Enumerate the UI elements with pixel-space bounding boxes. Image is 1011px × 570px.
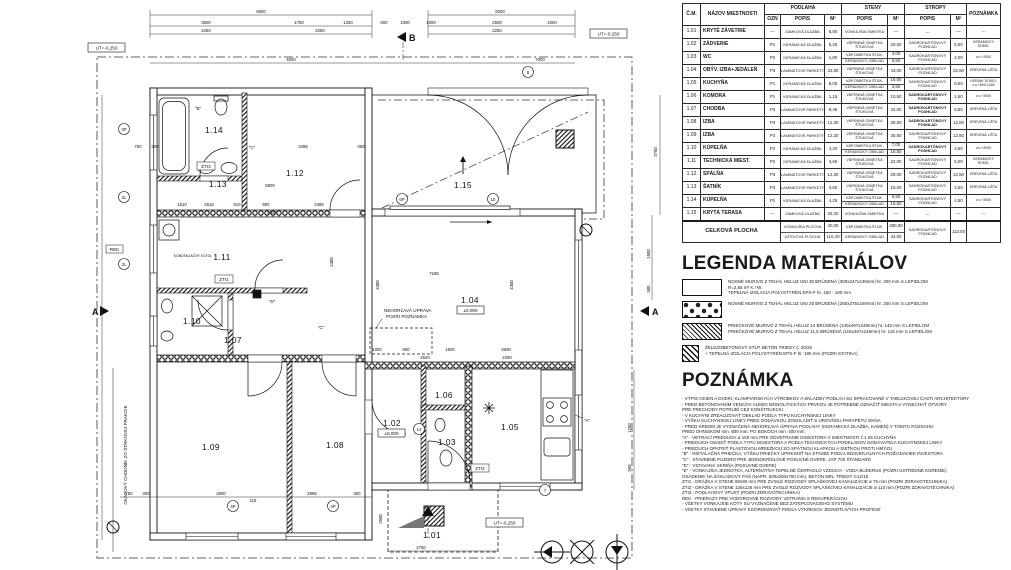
- room-label: 1.04: [461, 295, 479, 305]
- col-m2: M²: [888, 15, 905, 26]
- plan-graphic: [543, 546, 552, 558]
- dim-label: 2250: [502, 355, 512, 360]
- schedule-cell: —: [951, 208, 967, 222]
- schedule-row: 1.11TECHNICKÁ MIEST.P2KERAMICKÁ DLAŽBA4,…: [683, 156, 1001, 169]
- schedule-cell: 1.09: [683, 130, 701, 143]
- schedule-cell: 16,003,50: [888, 78, 905, 91]
- plan-graphic: [397, 32, 406, 42]
- room-label: 1.09: [202, 442, 220, 452]
- toilet: [215, 99, 227, 115]
- dim-label: 115: [250, 498, 257, 503]
- schedule-cell: SADROKARTÓNOVÝ PODHĽAD: [905, 65, 951, 78]
- schedule-cell: —: [765, 208, 781, 222]
- col-name: NÁZOV MIESTNOSTI: [701, 4, 765, 26]
- dim-label: 5800: [265, 183, 275, 188]
- zti-label: ZTI2: [475, 466, 485, 471]
- schedule-row: 1.08IZBAP3LAMINÁTOVÉ PARKETY12,30VÁPENNÁ…: [683, 117, 1001, 130]
- room-label: 1.08: [326, 440, 344, 450]
- schedule-cell: 35,50: [888, 130, 905, 143]
- schedule-cell: P3: [765, 65, 781, 78]
- dim-label: 1500: [646, 249, 651, 259]
- notes-section: POZNÁMKA - VÝPIS OKIEN A DVERÍ, KLAMPIAR…: [682, 370, 1009, 512]
- toilet: [440, 450, 452, 466]
- dim-label: 2020: [267, 210, 277, 215]
- schedule-cell: SADROKARTÓNOVÝ PODHĽAD: [905, 104, 951, 117]
- dim-label: 900: [262, 202, 270, 207]
- schedule-cell: 113,50: [951, 221, 967, 243]
- room-label: 1.11: [213, 252, 230, 262]
- schedule-row: 1.05KUCHYŇAP1KERAMICKÁ DLAŽBA8,05VÁP.OMI…: [683, 78, 1001, 91]
- plan-graphic: [547, 416, 554, 423]
- schedule-cell: KOMORA: [701, 91, 765, 104]
- schedule-cell: SADROKARTÓNOVÝ PODHĽAD: [905, 221, 951, 243]
- schedule-cell: 1.03: [683, 52, 701, 65]
- plan-graphic: [547, 402, 554, 409]
- schedule-cell: 12,50: [951, 130, 967, 143]
- schedule-cell: 43,00: [888, 65, 905, 78]
- plan-graphic: [365, 88, 372, 540]
- schedule-cell: v.o.+2000: [967, 143, 1001, 156]
- col-ozn: OZN: [765, 15, 781, 26]
- marker-label: 10: [491, 197, 496, 202]
- schedule-cell: 36,50: [888, 117, 905, 130]
- schedule-cell: KERAM. SOKEL v.o.+800-1400: [967, 78, 1001, 91]
- schedule-cell: 1.04: [683, 65, 701, 78]
- partition-walls: [157, 93, 465, 533]
- legend-item: NOSNÉ MURIVO Z TEHÁL HELUZ UNI 25 BRÚSEN…: [682, 301, 1009, 318]
- vent-symbol: [483, 402, 495, 414]
- note-line: - VÝPIS OKIEN A DVERÍ, KLAMPIARSKYCH VÝR…: [682, 396, 1009, 402]
- schedule-cell: 12,50: [951, 169, 967, 182]
- schedule-cell: SADROKARTÓNOVÝ PODHĽAD: [905, 182, 951, 195]
- dim-label: 2985: [307, 491, 317, 496]
- quote-label: "B": [195, 106, 202, 111]
- section-b-label: B: [409, 33, 416, 43]
- schedule-cell: 4,65: [825, 156, 842, 169]
- legend-item: PRIEČKOVÉ MURIVO Z TEHÁL HELUZ 14 BRÚSEN…: [682, 323, 1009, 340]
- toilet: [162, 299, 173, 313]
- quote-label: "D": [269, 299, 276, 304]
- schedule-cell: —: [888, 208, 905, 222]
- dim-label: 2500: [492, 20, 502, 25]
- schedule-row: 1.03WCP2KERAMICKÁ DLAŽBA1,80VÁP.OMIETKA …: [683, 52, 1001, 65]
- marker-label: 14: [417, 427, 422, 432]
- dim-label: 4300: [509, 280, 514, 290]
- dim-label: 1000: [372, 347, 382, 352]
- schedule-cell: 10,50: [888, 91, 905, 104]
- section-a-label: A: [92, 307, 99, 317]
- schedule-cell: 280,5044,00: [888, 221, 905, 243]
- dim-label: 7000: [535, 57, 545, 62]
- marker-label: 2L: [122, 195, 127, 200]
- schedule-row: 1.02ZÁDVERIEP1KERAMICKÁ DLAŽBA5,25VÁPENN…: [683, 39, 1001, 52]
- schedule-cell: ZÁMKOVÁ DLAŽBA: [781, 26, 825, 39]
- schedule-cell: VÁP.OMIETKA ŠTUK.KERAMICKÝ OBKLAD: [842, 52, 888, 65]
- schedule-cell: VÁPENNÁ OMIETKA ŠTUKOVÁ: [842, 169, 888, 182]
- schedule-cell: P3: [765, 182, 781, 195]
- schedule-cell: DREVENÁ LIŠTA: [967, 182, 1001, 195]
- schedule-cell: SADROKARTÓNOVÝ PODHĽAD: [905, 52, 951, 65]
- schedule-cell: P2: [765, 143, 781, 156]
- plan-graphic: [487, 220, 492, 224]
- schedule-cell: LAMINÁTOVÉ PARKETY: [781, 169, 825, 182]
- sliding-door: [385, 206, 520, 224]
- schedule-cell: KÚPEĽŇA: [701, 195, 765, 208]
- room-schedule-table: Č.M. NÁZOV MIESTNOSTI PODLAHA STENY STRO…: [682, 3, 1001, 243]
- elevation-label: UT=-0,250: [494, 521, 516, 526]
- schedule-cell: SPÁLŇA: [701, 169, 765, 182]
- legend-line: + TEPELNÁ IZOLÁCIA POLYSTYRÉN EPS-F hr. …: [705, 351, 858, 357]
- schedule-cell: —: [765, 26, 781, 39]
- schedule-cell: SADROKARTÓNOVÝ PODHĽAD: [905, 78, 951, 91]
- schedule-cell: P3: [765, 104, 781, 117]
- quote-label: "A": [584, 418, 591, 423]
- quote-label: "C": [249, 145, 256, 150]
- schedule-cell: 1.07: [683, 104, 701, 117]
- col-popis: POPIS: [842, 15, 888, 26]
- schedule-cell: 1,50: [951, 91, 967, 104]
- schedule-cell: VÁPENNÁ OMIETKA ŠTUKOVÁ: [842, 182, 888, 195]
- schedule-cell: —: [905, 208, 951, 222]
- dim-label: 950: [627, 464, 632, 472]
- kitchen-counter: [541, 370, 573, 480]
- sink: [161, 331, 173, 341]
- schedule-cell: v.o.+2000: [967, 52, 1001, 65]
- schedule-row: 1.13ŠATNÍKP3LAMINÁTOVÉ PARKETY3,50VÁPENN…: [683, 182, 1001, 195]
- col-m2: M²: [951, 15, 967, 26]
- schedule-cell: P2: [765, 52, 781, 65]
- schedule-cell: 1.01: [683, 26, 701, 39]
- zti-label: ZTI3: [201, 164, 211, 169]
- benchmark-left-icon: [534, 541, 570, 563]
- dim-label: 2250: [492, 28, 502, 33]
- schedule-cell: P3: [765, 130, 781, 143]
- schedule-cell: SADROKARTÓNOVÝ PODHĽAD: [905, 91, 951, 104]
- schedule-cell: 5,00: [951, 156, 967, 169]
- schedule-cell: 4,50: [951, 143, 967, 156]
- schedule-cell: 1,80: [825, 52, 842, 65]
- section-a-label: A: [652, 307, 659, 317]
- room-label: 1.05: [501, 422, 519, 432]
- right-panel: Č.M. NÁZOV MIESTNOSTI PODLAHA STENY STRO…: [681, 0, 1009, 570]
- schedule-cell: [967, 221, 1001, 243]
- schedule-cell: 3,50: [825, 182, 842, 195]
- plan-graphic: [611, 546, 623, 555]
- schedule-cell: 4,25: [825, 195, 842, 208]
- dim-label: 300: [151, 144, 159, 149]
- plan-graphic: [421, 405, 465, 410]
- schedule-cell: 1.14: [683, 195, 701, 208]
- schedule-cell: KERAMICKÁ DLAŽBA: [781, 91, 825, 104]
- schedule-cell: LAMINÁTOVÉ PARKETY: [781, 65, 825, 78]
- schedule-cell: 32,00: [888, 104, 905, 117]
- plan-graphic: [428, 88, 588, 95]
- legend-line: NOSNÉ MURIVO Z TEHÁL HELUZ UNI 30 BRÚSEN…: [728, 279, 928, 285]
- schedule-cell: 32,50: [825, 65, 842, 78]
- plan-graphic: [214, 96, 228, 101]
- col-stropy: STROPY: [905, 4, 967, 15]
- elevation-label: ±0,000: [384, 431, 398, 436]
- doors: [198, 148, 470, 490]
- marker-label: 4P: [330, 504, 335, 509]
- schedule-cell: KERAMICKÝ SOKEL: [967, 39, 1001, 52]
- room-label: 1.06: [435, 390, 453, 400]
- schedule-cell: P3: [765, 169, 781, 182]
- schedule-cell: 1.02: [683, 39, 701, 52]
- schedule-cell: 7,0016,50: [888, 143, 905, 156]
- dim-label: 2250: [201, 28, 211, 33]
- schedule-cell: VONKAJŠIA OMIETKA: [842, 208, 888, 222]
- plan-graphic: [163, 102, 186, 171]
- schedule-cell: SADROKARTÓNOVÝ PODHĽAD: [905, 156, 951, 169]
- schedule-cell: CELKOVÁ PLOCHA: [683, 221, 781, 243]
- schedule-cell: KERAMICKÝ SOKEL: [967, 156, 1001, 169]
- schedule-cell: P1: [765, 78, 781, 91]
- schedule-cell: 4,006,50: [888, 52, 905, 65]
- marker-label: 6P: [399, 197, 404, 202]
- schedule-cell: DREVENÁ LIŠTA: [967, 169, 1001, 182]
- sink: [435, 419, 445, 432]
- dim-label: 1000: [426, 20, 436, 25]
- schedule-cell: VÁP.OMIETKA ŠTUK.KERAMICKÝ OBKLAD: [842, 143, 888, 156]
- plan-graphic: [150, 88, 372, 95]
- plan-graphic: [561, 416, 568, 423]
- plan-graphic: [150, 533, 372, 540]
- marker-label: 3P: [121, 127, 126, 132]
- col-popis: POPIS: [905, 15, 951, 26]
- col-steny: STENY: [842, 4, 905, 15]
- room-label: 1.10: [183, 316, 201, 326]
- boiler-label: KONDENZAČNÝ KOTOL: [174, 253, 212, 258]
- dim-label: 2400: [329, 257, 334, 267]
- dim-label: 7185: [429, 271, 439, 276]
- dim-label: 4300: [375, 280, 380, 290]
- schedule-cell: P2: [765, 195, 781, 208]
- schedule-cell: DREVENÁ LIŠTA: [967, 65, 1001, 78]
- schedule-cell: KRYTÉ ZÁVETRIE: [701, 26, 765, 39]
- schedule-cell: P1: [765, 91, 781, 104]
- schedule-cell: 40,00110,40: [825, 221, 842, 243]
- schedule-row: 1.07CHODBAP3LAMINÁTOVÉ PARKETY8,45VÁPENN…: [683, 104, 1001, 117]
- schedule-cell: 22,00: [888, 156, 905, 169]
- dim-label: 300: [353, 491, 361, 496]
- schedule-cell: 8,50: [951, 78, 967, 91]
- schedule-cell: —: [888, 26, 905, 39]
- quote-label: "C": [318, 325, 325, 330]
- plan-graphic: [198, 300, 228, 330]
- dim-label: 1750: [294, 20, 304, 25]
- fire-note-label: NEHORĽAVÁ ÚPRAVA: [384, 307, 432, 313]
- legend-line: NOSNÉ MURIVO Z TEHÁL HELUZ UNI 25 BRÚSEN…: [728, 301, 928, 307]
- dim-label: 2250: [315, 28, 325, 33]
- dim-label: 2620: [420, 355, 430, 360]
- marker-label: 2L: [122, 262, 127, 267]
- plan-graphic: [428, 95, 508, 175]
- schedule-cell: VÁPENNÁ OMIETKA ŠTUKOVÁ: [842, 65, 888, 78]
- plan-graphic: [255, 260, 283, 288]
- legend-item: ŽELEZOBETÓNOVÝ STĹP, BETÓN TRIEDY C 20/2…: [682, 345, 1009, 362]
- schedule-cell: ZÁMKOVÁ DLAŽBA: [781, 208, 825, 222]
- schedule-cell: KERAMICKÁ DLAŽBA: [781, 156, 825, 169]
- step-marker: [398, 516, 424, 528]
- schedule-cell: IZBA: [701, 117, 765, 130]
- plan-graphic: [330, 210, 360, 217]
- zti-label: ZTI1: [219, 277, 229, 282]
- elevation-label: UT=-0,250: [598, 32, 620, 37]
- schedule-cell: 1.08: [683, 117, 701, 130]
- elevation-label: ±0,000: [463, 308, 477, 313]
- plan-graphic: [581, 225, 591, 235]
- dim-label: 1000: [547, 20, 557, 25]
- dim-label: 1250: [343, 20, 353, 25]
- legend-title: LEGENDA MATERIÁLOV: [682, 253, 1009, 275]
- dim-label: 1250: [627, 423, 632, 433]
- schedule-cell: 1.06: [683, 91, 701, 104]
- room-label: 1.03: [438, 437, 456, 447]
- schedule-cell: SADROKARTÓNOVÝ PODHĽAD: [905, 130, 951, 143]
- schedule-cell: 33,20: [825, 208, 842, 222]
- schedule-cell: ŠATNÍK: [701, 182, 765, 195]
- schedule-row: 1.10KÚPEĽŇAP2KERAMICKÁ DLAŽBA4,20VÁP.OMI…: [683, 143, 1001, 156]
- plan-graphic: [382, 112, 588, 208]
- schedule-cell: 1.12: [683, 169, 701, 182]
- schedule-cell: v.o.+2000: [967, 91, 1001, 104]
- plan-graphic: [508, 95, 588, 175]
- schedule-cell: 3,50: [951, 182, 967, 195]
- schedule-cell: 12,30: [825, 169, 842, 182]
- room-label: 1.02: [383, 418, 401, 428]
- stove: [543, 398, 571, 426]
- schedule-cell: DREVENÁ LIŠTA: [967, 104, 1001, 117]
- schedule-cell: 5,50: [951, 39, 967, 52]
- dim-label: 4600: [286, 57, 296, 62]
- schedule-cell: VÁPENNÁ OMIETKA ŠTUKOVÁ: [842, 130, 888, 143]
- plan-graphic: [100, 306, 109, 316]
- notes-title: POZNÁMKA: [682, 370, 1009, 392]
- entry-porch: [388, 490, 498, 552]
- dim-label: 500: [646, 285, 651, 293]
- schedule-row: 1.09IZBAP3LAMINÁTOVÉ PARKETY12,20VÁPENNÁ…: [683, 130, 1001, 143]
- schedule-cell: SADROKARTÓNOVÝ PODHĽAD: [905, 117, 951, 130]
- dim-label: 3500: [201, 20, 211, 25]
- schedule-cell: 32,50: [951, 65, 967, 78]
- floor-plan-drawing: OKAPOVÝ CHODNÍK ZO ŠTRKOVEJ FRAKCIE: [0, 0, 680, 570]
- dim-label: 900: [402, 347, 410, 352]
- plan-graphic: [157, 176, 242, 181]
- schedule-cell: 1.11: [683, 156, 701, 169]
- plan-graphic: [390, 206, 510, 209]
- marker-label: 4P: [230, 504, 235, 509]
- dim-label: 2385: [314, 202, 324, 207]
- schedule-cell: —: [905, 26, 951, 39]
- dim-label: 750: [134, 144, 142, 149]
- kitchen-sink: [544, 438, 570, 456]
- plan-graphic: [385, 209, 520, 216]
- schedule-cell: 12,20: [825, 130, 842, 143]
- dim-label: 3485: [298, 144, 308, 149]
- schedule-cell: LAMINÁTOVÉ PARKETY: [781, 104, 825, 117]
- dim-label: 500: [380, 20, 388, 25]
- dim-label: 910: [233, 202, 241, 207]
- schedule-cell: 12,50: [951, 117, 967, 130]
- plan-graphic: [428, 441, 470, 483]
- schedule-row: 1.14KÚPEĽŇAP2KERAMICKÁ DLAŽBA4,25VÁP.OMI…: [683, 195, 1001, 208]
- plan-graphic: [242, 93, 247, 210]
- schedule-cell: —: [967, 26, 1001, 39]
- schedule-cell: KERAMICKÁ DLAŽBA: [781, 39, 825, 52]
- schedule-cell: DREVENÁ LIŠTA: [967, 130, 1001, 143]
- exterior-walls: [150, 88, 582, 540]
- wall-heluz30-swatch: [682, 279, 722, 296]
- schedule-cell: KRYTÁ TERASA: [701, 208, 765, 222]
- schedule-cell: 1,15: [825, 91, 842, 104]
- schedule-cell: v.o.+2000: [967, 195, 1001, 208]
- schedule-cell: KÚPEĽŇA: [701, 143, 765, 156]
- plan-graphic: [322, 362, 356, 396]
- dim-label: 2615: [204, 202, 214, 207]
- schedule-cell: 1.13: [683, 182, 701, 195]
- concrete-column-swatch: [682, 345, 699, 362]
- col-popis: POPIS: [781, 15, 825, 26]
- schedule-cell: ZÁDVERIE: [701, 39, 765, 52]
- gravel-walk-label: OKAPOVÝ CHODNÍK ZO ŠTRKOVEJ FRAKCIE: [122, 405, 128, 504]
- room-label: 1.07: [224, 335, 242, 345]
- note-line: - VŠETKY STAVEBNÉ ÚPRAVY KOORDINOVAŤ POD…: [682, 507, 1009, 513]
- schedule-cell: VÁPENNÁ OMIETKA ŠTUKOVÁ: [842, 117, 888, 130]
- schedule-row: 1.12SPÁLŇAP3LAMINÁTOVÉ PARKETY12,30VÁPEN…: [683, 169, 1001, 182]
- benchmark-down-icon: [606, 534, 628, 570]
- schedule-cell: VÁPENNÁ OMIETKA ŠTUKOVÁ: [842, 39, 888, 52]
- schedule-cell: LAMINÁTOVÉ PARKETY: [781, 117, 825, 130]
- schedule-cell: VÁPENNÁ OMIETKA ŠTUKOVÁ: [842, 91, 888, 104]
- schedule-row: 1.15KRYTÁ TERASA—ZÁMKOVÁ DLAŽBA33,20VONK…: [683, 208, 1001, 222]
- drain-mark: [253, 290, 261, 298]
- schedule-cell: IZBA: [701, 130, 765, 143]
- wall-heluz25-swatch: [682, 301, 722, 318]
- schedule-cell: SADROKARTÓNOVÝ PODHĽAD: [905, 195, 951, 208]
- room-label: 1.12: [286, 168, 304, 178]
- schedule-cell: —: [967, 208, 1001, 222]
- schedule-cell: 6,80: [825, 26, 842, 39]
- plan-graphic: [163, 224, 175, 236]
- schedule-cell: DREVENÁ LIŠTA: [967, 117, 1001, 130]
- schedule-cell: WC: [701, 52, 765, 65]
- materials-legend: LEGENDA MATERIÁLOV NOSNÉ MURIVO Z TEHÁL …: [682, 253, 1009, 362]
- dim-label: 3750: [653, 147, 658, 157]
- schedule-cell: VÁP.OMIETKA ŠTUK.KERAMICKÝ OBKLAD: [842, 221, 888, 243]
- dim-label: 2750: [416, 545, 426, 550]
- schedule-cell: SADROKARTÓNOVÝ PODHĽAD: [905, 169, 951, 182]
- schedule-cell: SADROKARTÓNOVÝ PODHĽAD: [905, 143, 951, 156]
- plan-graphic: [640, 306, 649, 316]
- plan-graphic: [322, 355, 356, 362]
- legend-line: PRIEČKOVÉ MURIVO Z TEHÁL HELUZ 14 BRÚSEN…: [728, 323, 932, 329]
- schedule-cell: CHODBA: [701, 104, 765, 117]
- schedule-cell: 1.15: [683, 208, 701, 222]
- plan-graphic: [248, 362, 282, 396]
- plan-graphic: [330, 180, 360, 210]
- room-label: 1.01: [423, 530, 441, 540]
- plan-graphic: [561, 402, 568, 409]
- schedule-header: Č.M. NÁZOV MIESTNOSTI PODLAHA STENY STRO…: [683, 4, 1001, 26]
- schedule-cell: KERAMICKÁ DLAŽBA: [781, 52, 825, 65]
- schedule-cell: KUCHYŇA: [701, 78, 765, 91]
- dim-label: 300: [357, 144, 365, 149]
- dim-label: 6500: [256, 9, 266, 14]
- col-poznamka: POZNÁMKA: [967, 4, 1001, 26]
- plan-graphic: [376, 319, 382, 328]
- schedule-cell: 29,00: [888, 169, 905, 182]
